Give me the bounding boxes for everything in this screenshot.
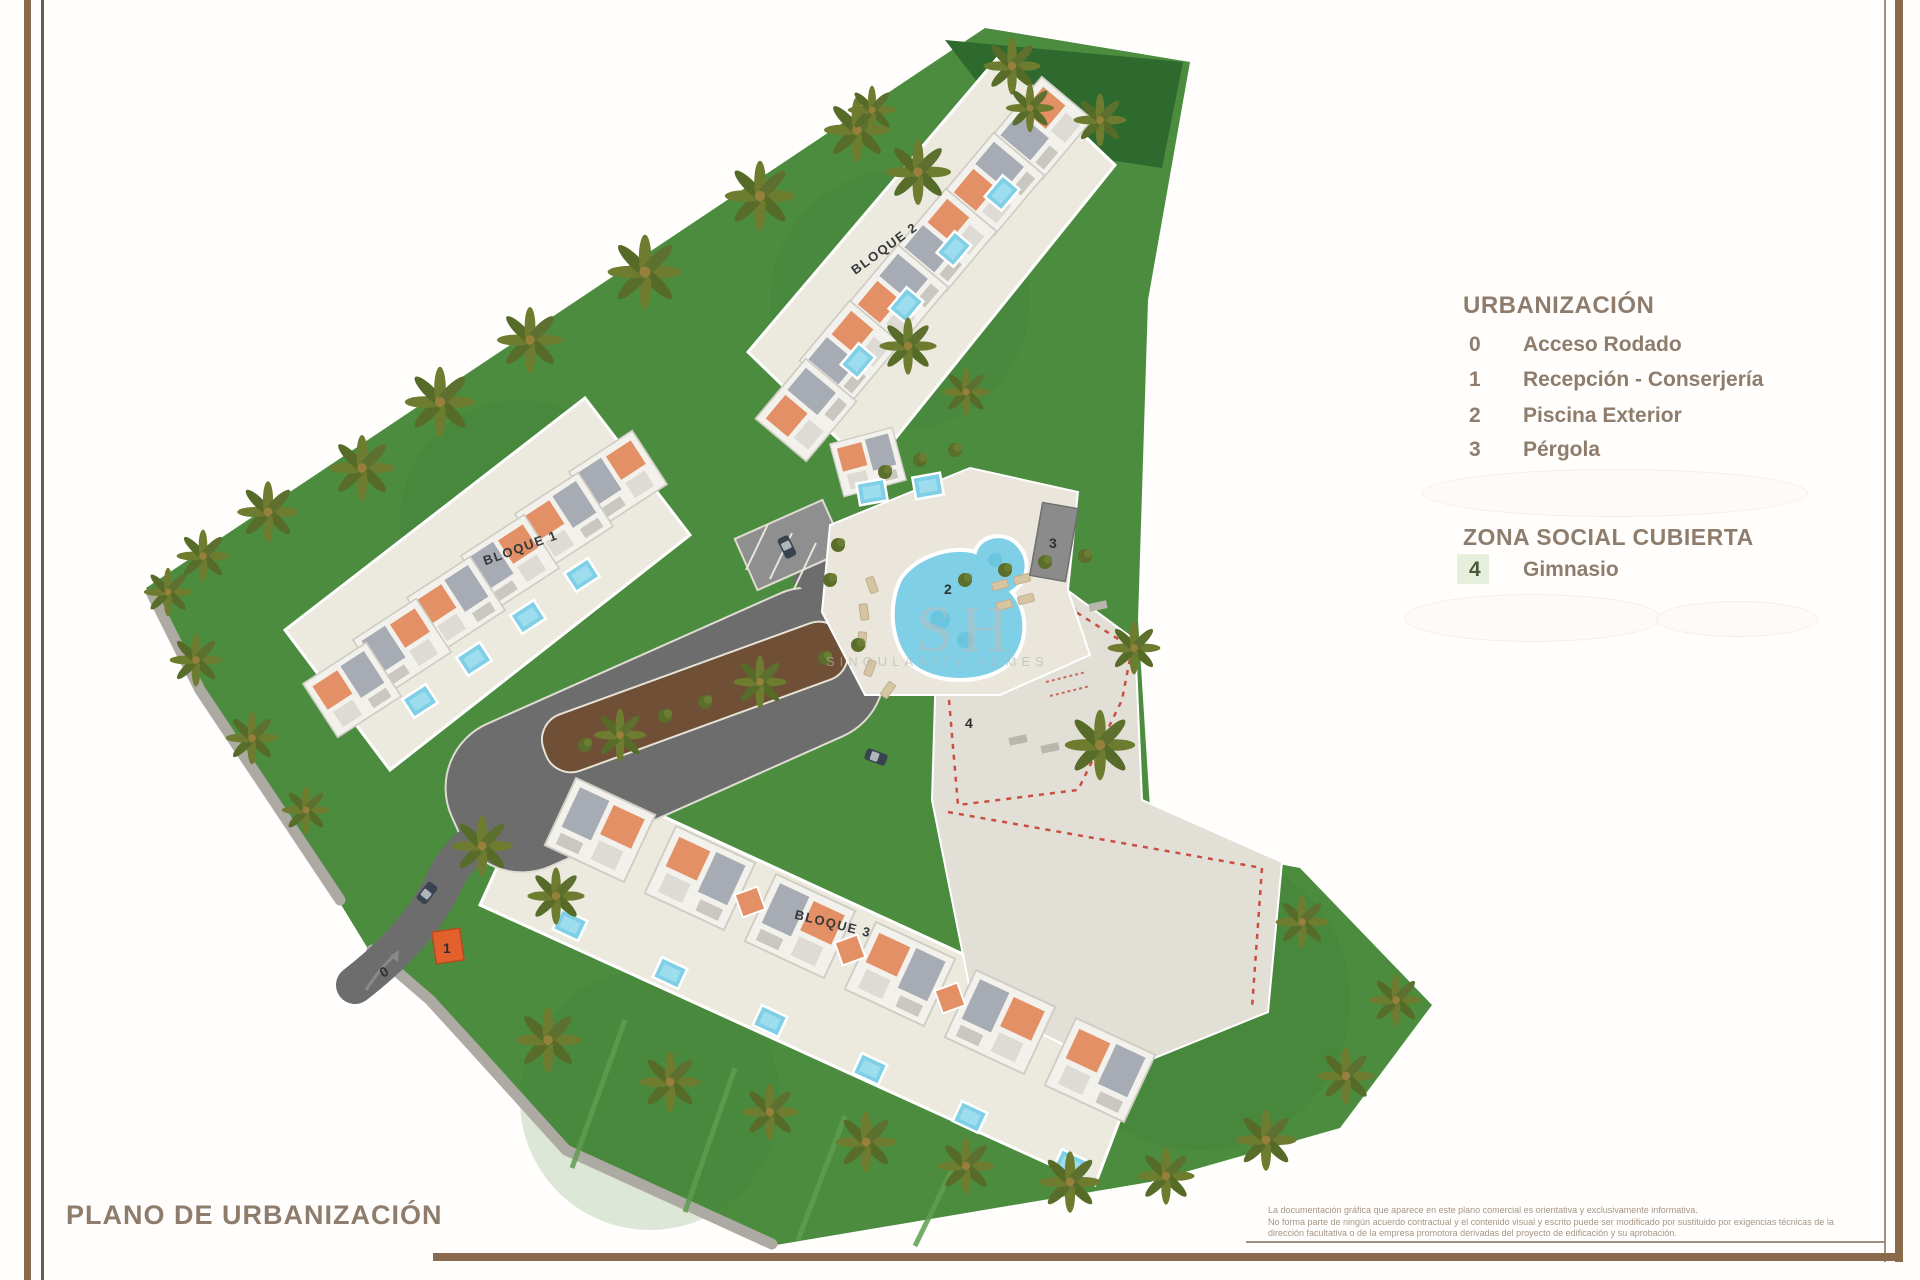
legend-item-recepcion: 1 Recepción - Conserjería [1455, 368, 1855, 396]
watermark-patch [1422, 469, 1808, 517]
legend-item-label: Piscina Exterior [1523, 404, 1682, 428]
frame-left-outer [24, 0, 31, 1280]
legend-item-num: 1 [1469, 368, 1505, 392]
disclaimer-line: No forma parte de ningún acuerdo contrac… [1268, 1217, 1843, 1229]
legend-item-pergola: 3 Pérgola [1455, 438, 1855, 466]
legend-section2-title: ZONA SOCIAL CUBIERTA [1463, 524, 1754, 551]
watermark-patch [1404, 594, 1662, 642]
legend-item-gimnasio: 4 Gimnasio [1455, 558, 1855, 586]
legend-item-num: 4 [1469, 558, 1505, 582]
disclaimer: La documentación gráfica que aparece en … [1268, 1205, 1843, 1240]
frame-bottom-outer [433, 1253, 1903, 1261]
frame-bottom-inner [1246, 1241, 1886, 1243]
legend-section1-title: URBANIZACIÓN [1463, 292, 1654, 320]
legend-item-label: Gimnasio [1523, 558, 1619, 582]
page-title: PLANO DE URBANIZACIÓN [66, 1200, 443, 1231]
legend-item-label: Pérgola [1523, 438, 1600, 462]
frame-left-inner [41, 0, 44, 1280]
legend-item-piscina: 2 Piscina Exterior [1455, 404, 1855, 432]
frame-right-inner [1884, 0, 1886, 1262]
legend-item-num: 0 [1469, 333, 1505, 357]
disclaimer-line: La documentación gráfica que aparece en … [1268, 1205, 1843, 1217]
marker-pergola: 3 [1049, 535, 1057, 551]
legend-item-label: Recepción - Conserjería [1523, 368, 1763, 392]
legend-item-acceso: 0 Acceso Rodado [1455, 333, 1855, 361]
legend-item-num: 2 [1469, 404, 1505, 428]
marker-gimnasio: 4 [965, 715, 973, 731]
disclaimer-line: dirección facultativa o de la empresa pr… [1268, 1228, 1843, 1240]
watermark-text: SINGULARITY HOMES [826, 654, 1049, 669]
legend-item-num: 3 [1469, 438, 1505, 462]
plan-sheet: BLOQUE 1 BLOQUE 2 BLOQUE 3 0 1 2 3 4 SH … [0, 0, 1920, 1280]
frame-right-outer [1895, 0, 1903, 1262]
legend-item-label: Acceso Rodado [1523, 333, 1682, 357]
marker-recepcion: 1 [443, 940, 451, 956]
watermark-patch [1656, 601, 1818, 637]
